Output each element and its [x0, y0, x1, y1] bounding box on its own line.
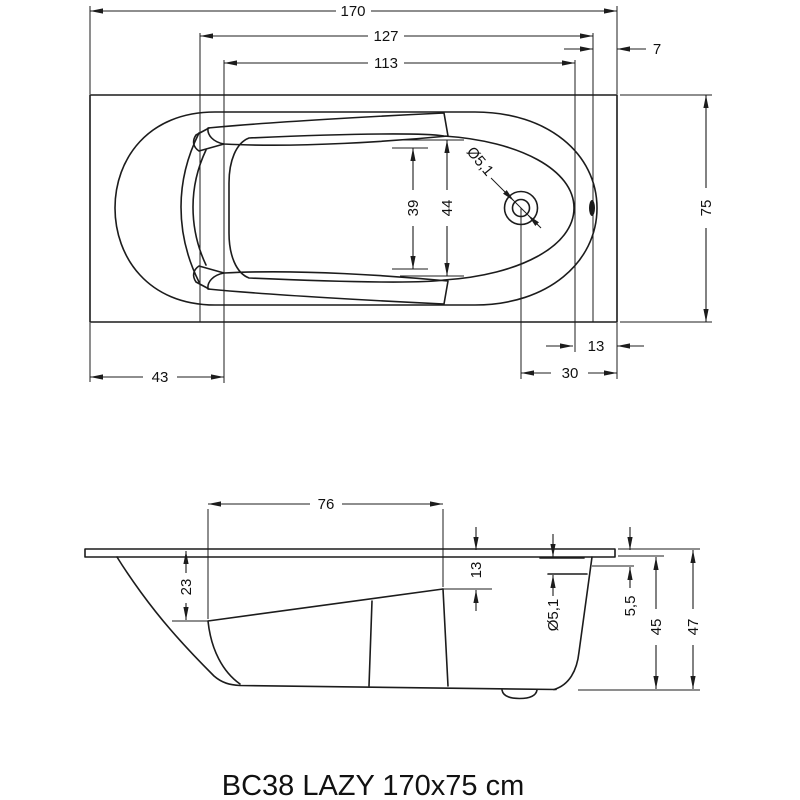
rim-slab-outline — [85, 549, 615, 557]
dim-backrest-drop-label: 23 — [178, 579, 195, 596]
dim-overall-width-label: 75 — [698, 200, 715, 217]
product-caption: BC38 LAZY 170x75 cm — [222, 770, 525, 800]
dim-overflow-offset-label: 5,5 — [622, 596, 639, 617]
leader-line — [491, 178, 503, 190]
top-view: 170 127 113 7 75 39 44 Ø5,1 43 — [90, 3, 715, 386]
drain-fitting-outline — [502, 690, 537, 699]
dim-drain-center-to-edge-label: 30 — [562, 365, 579, 382]
dim-seat-width-label: 39 — [405, 200, 422, 217]
side-view: 76 23 13 Ø5,1 5,5 45 47 — [85, 496, 702, 699]
dim-basin-width-label: 44 — [439, 200, 456, 217]
dim-basin-length-label: 113 — [374, 55, 398, 72]
tub-basin-outline — [229, 134, 574, 282]
shell-left-profile — [117, 557, 556, 690]
dim-drain-diameter-label: Ø5,1 — [463, 144, 497, 180]
seat-end-line — [443, 589, 448, 686]
backrest-outer-curve — [181, 133, 199, 282]
dim-backrest-offset-label: 43 — [152, 369, 169, 386]
dim-shell-height-label: 45 — [648, 619, 665, 636]
dim-drain-to-edge-label: 13 — [588, 338, 605, 355]
dim-rim-to-seat-label: 13 — [468, 562, 485, 579]
dim-line — [503, 190, 514, 201]
overflow-mark — [589, 200, 595, 216]
seat-slope-line — [208, 589, 443, 621]
dim-rim-edge-offset-label: 7 — [653, 41, 661, 58]
technical-drawing-page: 170 127 113 7 75 39 44 Ø5,1 43 — [0, 0, 800, 800]
dim-overflow-diameter-label: Ø5,1 — [545, 599, 562, 632]
dim-overall-length-label: 170 — [340, 3, 365, 20]
dim-rim-length-label: 127 — [373, 28, 398, 45]
armrest-bottom-outline — [208, 272, 448, 304]
dim-overall-height-label: 47 — [685, 619, 702, 636]
bathtub-technical-drawing: 170 127 113 7 75 39 44 Ø5,1 43 — [0, 0, 800, 800]
tub-rim-opening-outline — [115, 112, 597, 305]
seat-seam-line — [369, 601, 372, 686]
dim-seat-length-label: 76 — [318, 496, 335, 513]
